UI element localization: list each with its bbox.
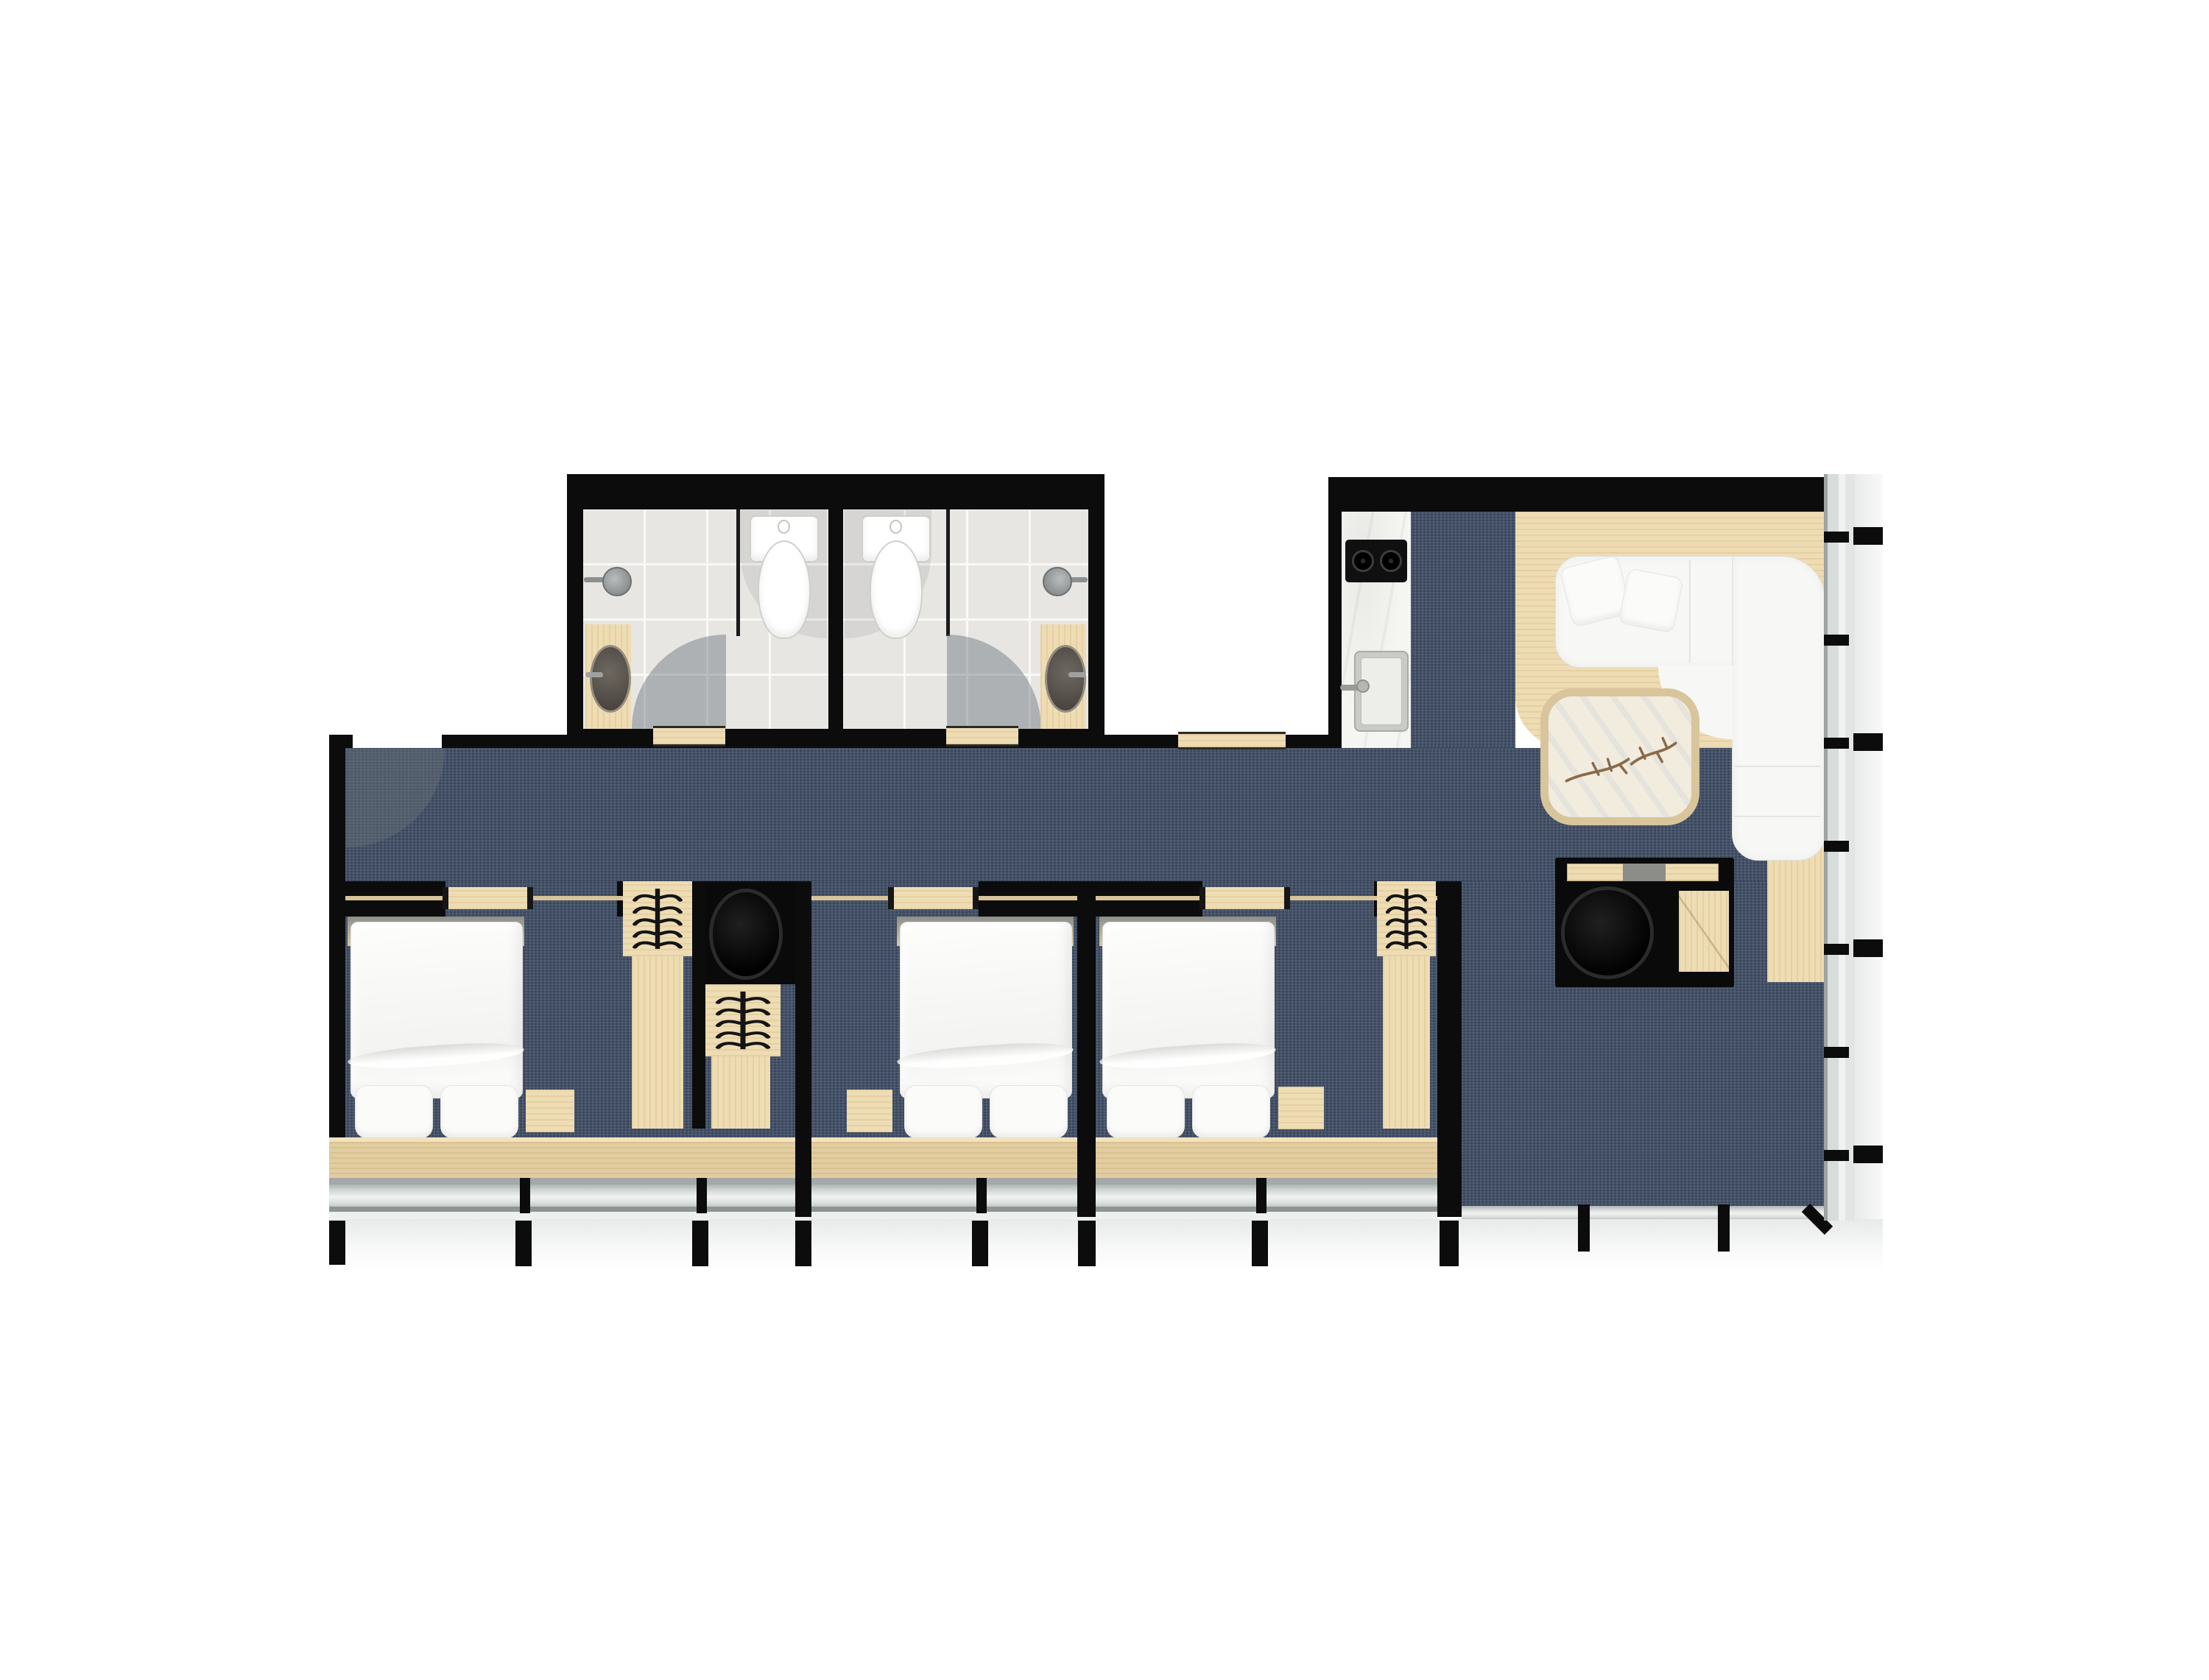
east-mullion-tick-outer [1853,733,1883,751]
hall-top-wall-b [442,735,567,748]
mullion-stub [329,1221,345,1265]
bathroom-2-partition [946,509,950,636]
wardrobe-1-cabinet [632,956,683,1129]
hangers-icon [627,886,688,952]
pillow-left [904,1085,982,1138]
pillow-left [355,1085,433,1138]
basin-bath2 [1045,645,1086,713]
mullion-stub [1078,1221,1096,1266]
nightstand-bedroom-1 [526,1090,574,1132]
duvet [350,922,523,1098]
mullion-post [520,1178,530,1213]
east-mullion-tick [1824,841,1849,852]
east-mullion-tick-outer [1853,939,1883,957]
threshold-bath2 [946,726,1018,747]
mullion-post-living [1578,1204,1590,1252]
living-desk-shelf-tray [1623,864,1666,881]
sofa-seam-3 [1735,816,1820,817]
divider-bedroom2-bedroom3 [1077,881,1096,1217]
east-mullion-tick [1824,635,1849,646]
divider-bedroom1-bedroom2 [795,881,811,1217]
sliding-door-bedroom-2 [888,887,979,909]
sliding-door-bedroom-1 [443,887,533,909]
toilet-bowl-bath2 [870,540,923,639]
outer-band-east [1855,474,1883,1221]
pillow-right [440,1085,518,1138]
window-bench-sill [329,1137,1437,1179]
hangers-icon [710,989,776,1052]
sofa-pillow-2 [1618,568,1683,633]
wardrobe-3-hangers [1377,881,1436,956]
sliding-door-bedroom-3 [1199,887,1290,909]
hangers-icon [1381,886,1431,952]
east-mullion-tick-outer [1853,1146,1883,1163]
window-glass-south [329,1185,1437,1207]
east-mullion-tick [1824,944,1849,955]
mullion-stub [1252,1221,1268,1266]
kitchen-faucet-knob-icon [1356,680,1370,693]
wall-bedroom3-living [1437,881,1462,1217]
threshold-bath1 [653,726,725,747]
pillow-right [1192,1085,1270,1138]
sofa-seam-1 [1689,560,1691,663]
mullion-stub [515,1221,532,1266]
sofa-seam-2 [1735,766,1820,767]
nightstand-bedroom-2 [847,1090,892,1132]
east-mullion-tick-outer [1853,527,1883,545]
mullion-post [697,1178,707,1213]
mullion-stub [692,1221,708,1266]
wardrobe-divider-wall [692,881,705,1129]
hall-top-wall-a [329,735,353,748]
mullion-stub [1440,1221,1459,1266]
faucet-bath2-icon [1068,672,1086,677]
window-glass-living-south [1462,1206,1824,1219]
basin-bath1 [590,645,631,713]
living-side-table [1679,891,1729,972]
mullion-post [1256,1178,1266,1213]
mullion-post [976,1178,987,1213]
toilet-button-bath1 [778,520,790,534]
coffee-table [1540,688,1699,825]
mullion-stub [972,1221,988,1266]
sofa-seat-vertical [1732,556,1825,861]
living-room-carpet [1411,512,1515,748]
kitchen-top-wall [1328,477,1824,512]
window-frame-top [329,1178,1437,1185]
shower-head-bath1-icon [602,567,632,596]
kitchen-left-wall [1328,512,1342,748]
mullion-post-living [1718,1204,1730,1252]
nightstand-bedroom-3 [1278,1087,1324,1129]
faucet-bath1-icon [585,672,603,677]
burner-left-icon [1352,550,1374,572]
mullion-stub [795,1221,811,1266]
hall-threshold [1178,732,1286,749]
floor-plan-canvas [0,0,2209,1680]
bed-bedroom-3 [1099,922,1276,1140]
shower-head-bath2-icon [1043,567,1072,596]
duvet [900,922,1072,1098]
window-outer-ledge [329,1212,1437,1219]
east-mullion-tick [1824,532,1849,543]
burner-right-icon [1380,550,1402,572]
wardrobe-2-cabinet [711,1056,770,1129]
wardrobe-3-cabinet [1383,956,1430,1129]
bed-bedroom-2 [897,922,1074,1140]
living-round-chair [1561,886,1654,979]
east-mullion-tick [1824,1047,1849,1058]
pillow-right [990,1085,1068,1138]
bedroom-desk-stool [709,889,783,980]
window-frame-bottom [329,1207,1437,1212]
east-mullion-tick [1824,738,1849,749]
toilet-button-bath2 [889,520,902,534]
duvet [1102,922,1275,1098]
wardrobe-2-hangers [705,984,781,1056]
toilet-bowl-bath1 [758,540,811,639]
east-mullion-tick [1824,1150,1849,1161]
outer-band-south [329,1219,1883,1271]
pillow-left [1107,1085,1185,1138]
bed-bedroom-1 [348,922,524,1140]
branch-motif-icon [1549,696,1691,817]
wardrobe-1-hangers [623,881,692,956]
